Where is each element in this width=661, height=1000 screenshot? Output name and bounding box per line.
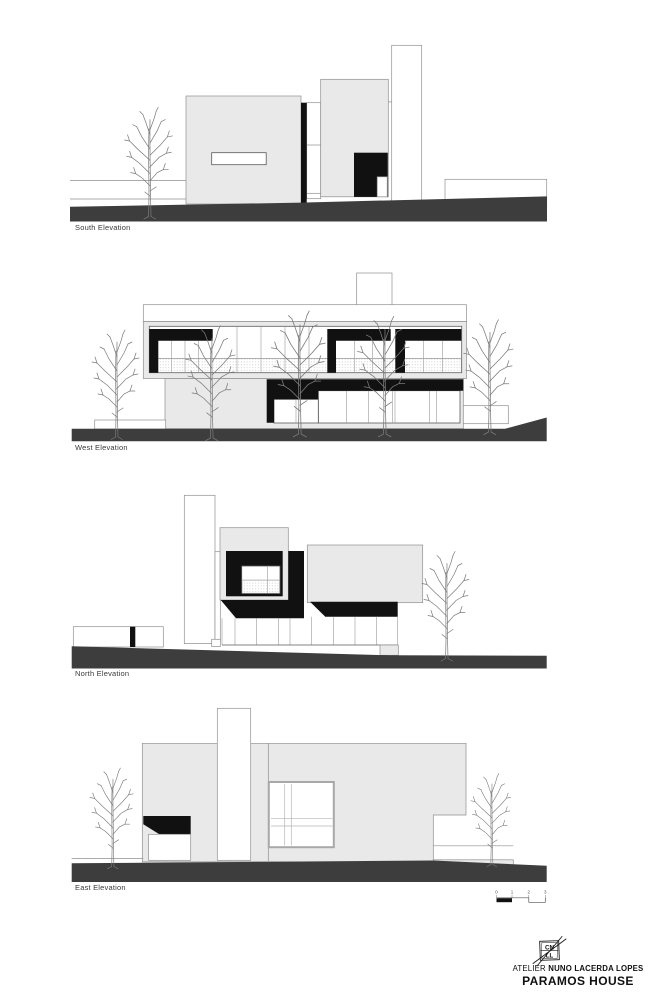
tree xyxy=(90,768,133,869)
south-tower xyxy=(392,45,422,203)
drawing-sheet: 0 1 2 3 CN LL South Elevation West Eleva… xyxy=(0,0,661,1000)
south-slot-window xyxy=(212,153,267,165)
scale-mark-2: 2 xyxy=(528,890,531,895)
north-dark-pier xyxy=(288,551,304,601)
north-awning-left xyxy=(221,600,304,618)
south-ground xyxy=(70,196,547,221)
scale-mark-1: 1 xyxy=(511,890,514,895)
north-right-volume xyxy=(307,545,422,603)
studio-prefix: ATELIER xyxy=(513,964,546,973)
east-ground xyxy=(72,861,547,883)
studio-name: NUNO LACERDA LOPES xyxy=(548,964,643,973)
west-elevation-label: West Elevation xyxy=(75,443,128,452)
north-left-wall xyxy=(73,627,163,647)
title-block: ATELIER NUNO LACERDA LOPES PARAMOS HOUSE xyxy=(505,964,651,988)
west-left-wall xyxy=(95,420,166,429)
drawing-canvas: 0 1 2 3 CN LL xyxy=(0,0,661,1000)
atelier-logo: CN LL xyxy=(533,937,566,967)
tree xyxy=(471,774,511,867)
logo-letters-bottom: LL xyxy=(546,953,554,960)
studio-name-line: ATELIER NUNO LACERDA LOPES xyxy=(505,964,651,973)
south-main-volume xyxy=(186,96,301,204)
tree xyxy=(125,107,173,219)
scale-bar: 0 1 2 3 xyxy=(495,890,547,903)
north-awning-right xyxy=(310,602,398,617)
south-elevation-label: South Elevation xyxy=(75,223,131,232)
logo-letters-top: CN xyxy=(545,944,554,951)
east-elevation-label: East Elevation xyxy=(75,883,126,892)
scale-mark-3: 3 xyxy=(544,890,547,895)
west-roof-band xyxy=(143,305,466,322)
north-wall-post xyxy=(130,627,135,647)
east-window xyxy=(269,782,334,847)
north-elevation-drawing xyxy=(72,495,547,668)
west-chimney xyxy=(357,273,392,305)
north-tower xyxy=(184,495,215,643)
south-elevation-drawing xyxy=(70,45,547,221)
tree xyxy=(422,552,469,662)
east-chimney xyxy=(217,708,250,860)
east-porch xyxy=(149,834,191,860)
project-title: PARAMOS HOUSE xyxy=(505,974,651,988)
north-elevation-label: North Elevation xyxy=(75,669,129,678)
south-dark-pier xyxy=(301,103,307,204)
west-right-wall xyxy=(463,406,508,424)
north-ground xyxy=(72,646,547,668)
east-elevation-drawing xyxy=(72,708,547,882)
west-elevation-drawing xyxy=(72,273,547,441)
scale-mark-0: 0 xyxy=(495,890,498,895)
